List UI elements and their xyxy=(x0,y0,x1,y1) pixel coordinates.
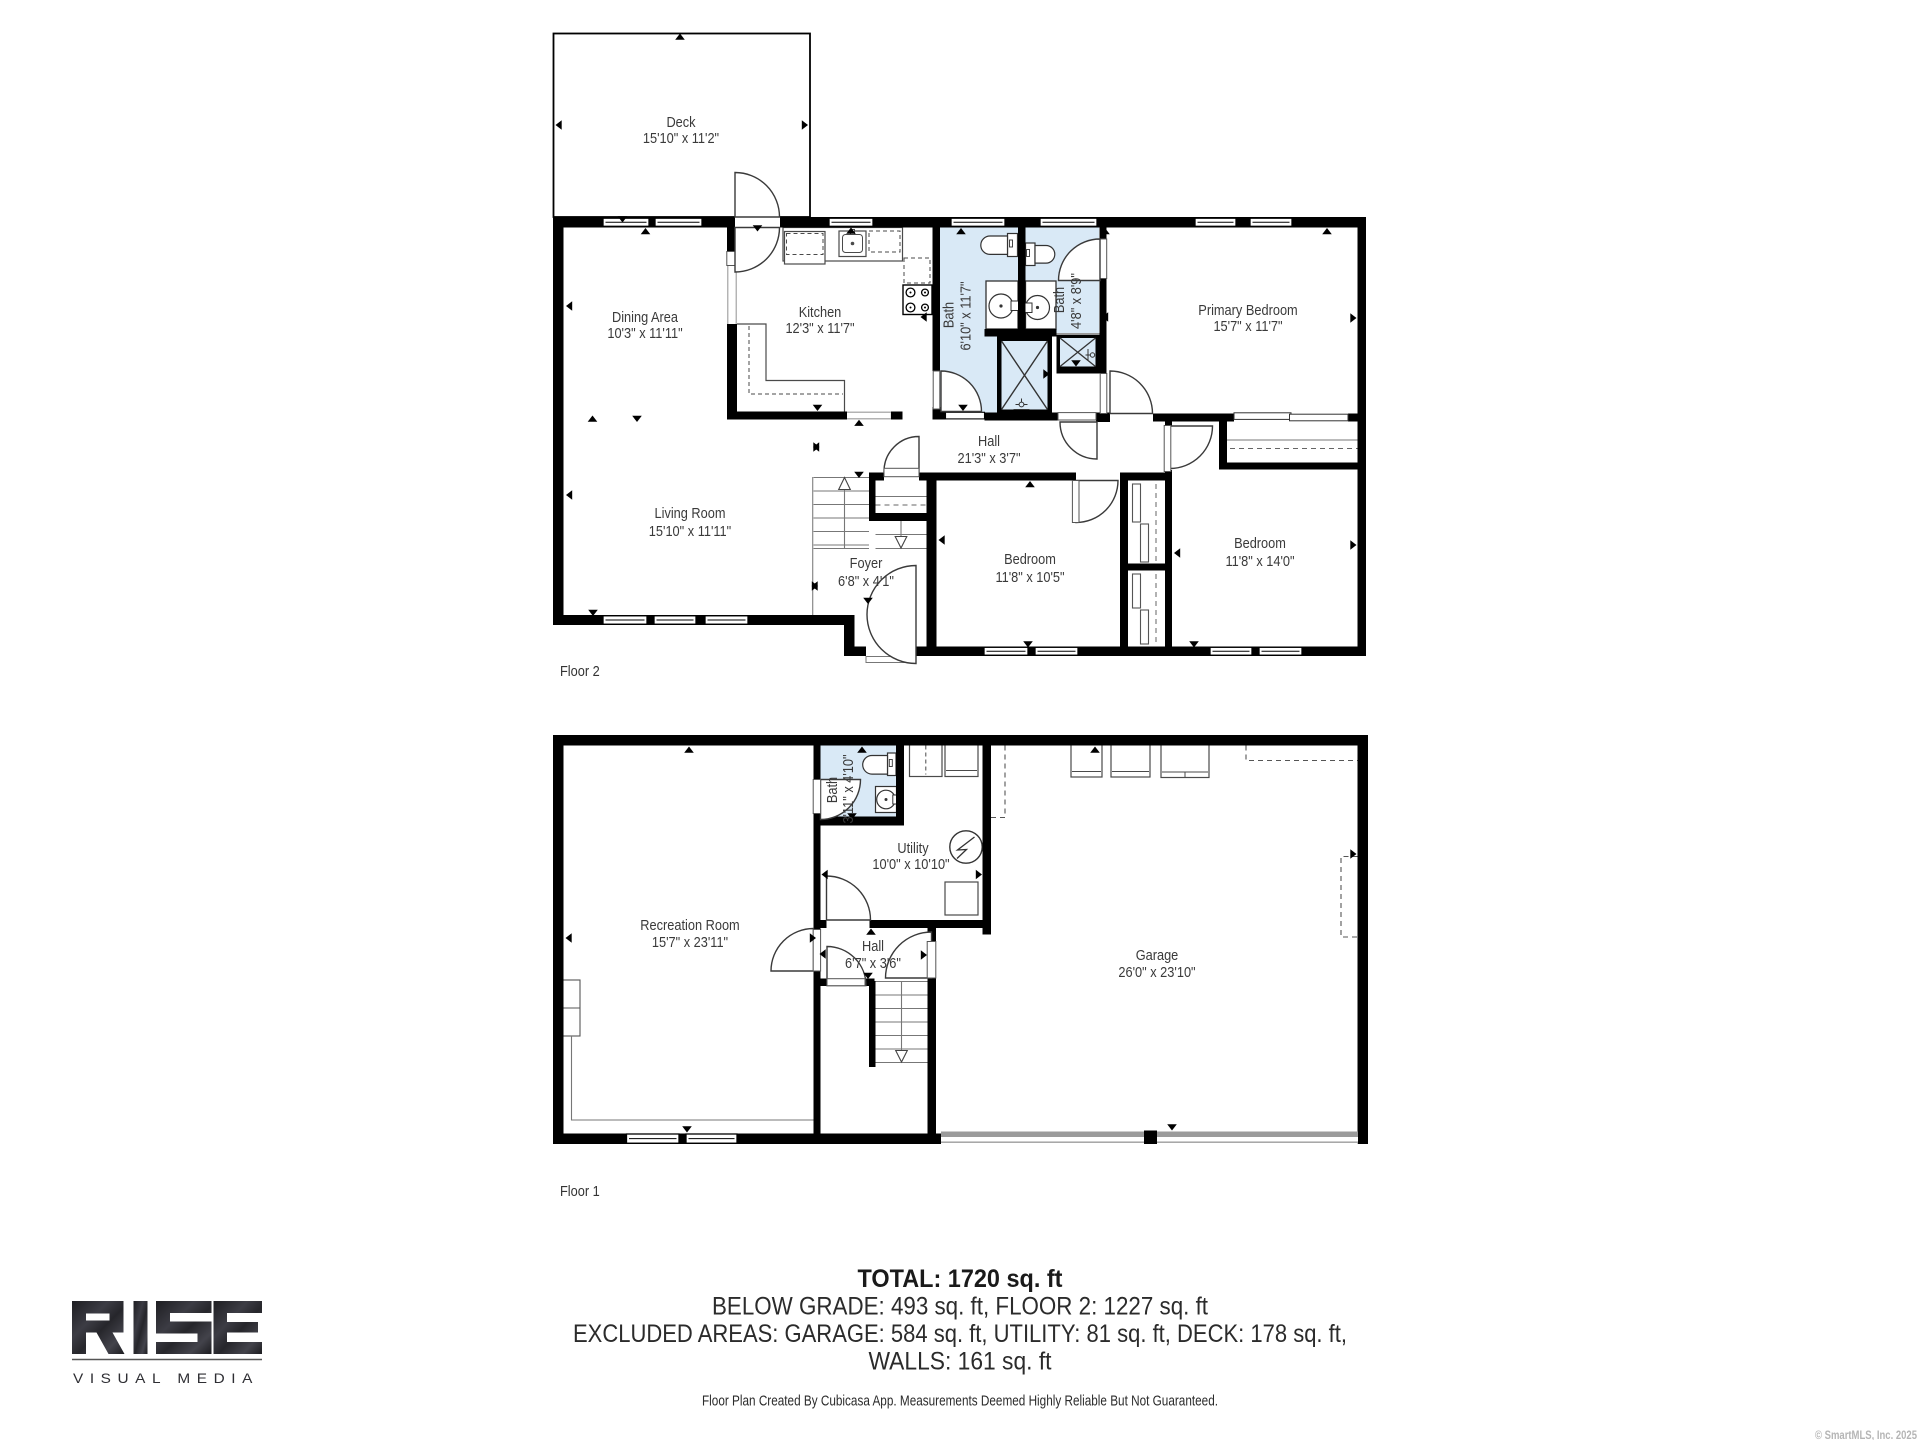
svg-text:Floor Plan Created By Cubicasa: Floor Plan Created By Cubicasa App. Meas… xyxy=(702,1394,1218,1410)
svg-text:WALLS: 161 sq. ft: WALLS: 161 sq. ft xyxy=(869,1348,1052,1376)
svg-text:Hall: Hall xyxy=(862,939,884,955)
svg-text:Bedroom: Bedroom xyxy=(1004,552,1056,568)
svg-text:Utility: Utility xyxy=(897,841,929,857)
svg-text:15'7" x 11'7": 15'7" x 11'7" xyxy=(1213,319,1282,335)
svg-text:12'3" x 11'7": 12'3" x 11'7" xyxy=(785,321,854,337)
svg-text:15'10" x 11'2": 15'10" x 11'2" xyxy=(643,131,719,147)
svg-text:11'8" x 10'5": 11'8" x 10'5" xyxy=(995,570,1064,586)
svg-text:Living Room: Living Room xyxy=(655,506,726,522)
svg-text:Recreation Room: Recreation Room xyxy=(640,918,739,934)
svg-text:EXCLUDED AREAS: GARAGE: 584 sq: EXCLUDED AREAS: GARAGE: 584 sq. ft, UTIL… xyxy=(573,1320,1347,1348)
svg-text:Foyer: Foyer xyxy=(850,556,883,572)
svg-text:Dining Area: Dining Area xyxy=(612,310,679,326)
svg-text:Floor 2: Floor 2 xyxy=(560,664,600,680)
svg-text:6'7" x 3'6": 6'7" x 3'6" xyxy=(845,956,901,972)
svg-text:© SmartMLS, Inc. 2025: © SmartMLS, Inc. 2025 xyxy=(1815,1430,1917,1440)
svg-text:3'11" x 4'10": 3'11" x 4'10" xyxy=(841,754,857,823)
svg-text:Bath: Bath xyxy=(825,777,841,803)
svg-text:Bath: Bath xyxy=(1052,287,1068,313)
svg-text:15'7" x 23'11": 15'7" x 23'11" xyxy=(652,935,728,951)
svg-text:Primary Bedroom: Primary Bedroom xyxy=(1198,303,1297,319)
svg-text:4'8" x 8'9": 4'8" x 8'9" xyxy=(1069,273,1085,329)
svg-text:10'3" x 11'11": 10'3" x 11'11" xyxy=(607,326,682,342)
svg-text:21'3" x 3'7": 21'3" x 3'7" xyxy=(958,451,1021,467)
svg-text:15'10" x 11'11": 15'10" x 11'11" xyxy=(649,524,731,540)
svg-text:Bath: Bath xyxy=(942,302,958,328)
svg-text:Kitchen: Kitchen xyxy=(799,305,842,321)
svg-text:11'8" x 14'0": 11'8" x 14'0" xyxy=(1225,554,1294,570)
svg-text:Garage: Garage xyxy=(1136,948,1179,964)
svg-text:VISUAL MEDIA: VISUAL MEDIA xyxy=(73,1370,259,1386)
svg-text:TOTAL: 1720 sq. ft: TOTAL: 1720 sq. ft xyxy=(858,1265,1064,1293)
svg-text:Hall: Hall xyxy=(978,434,1000,450)
svg-text:6'8" x 4'1": 6'8" x 4'1" xyxy=(838,574,894,590)
svg-text:6'10" x 11'7": 6'10" x 11'7" xyxy=(959,281,975,350)
svg-text:Floor 1: Floor 1 xyxy=(560,1184,600,1200)
svg-text:26'0" x 23'10": 26'0" x 23'10" xyxy=(1118,965,1195,981)
svg-text:Deck: Deck xyxy=(666,115,696,131)
svg-text:10'0" x 10'10": 10'0" x 10'10" xyxy=(872,857,949,873)
svg-text:BELOW GRADE: 493 sq. ft, FLOOR: BELOW GRADE: 493 sq. ft, FLOOR 2: 1227 s… xyxy=(712,1293,1208,1321)
svg-text:Bedroom: Bedroom xyxy=(1234,536,1286,552)
